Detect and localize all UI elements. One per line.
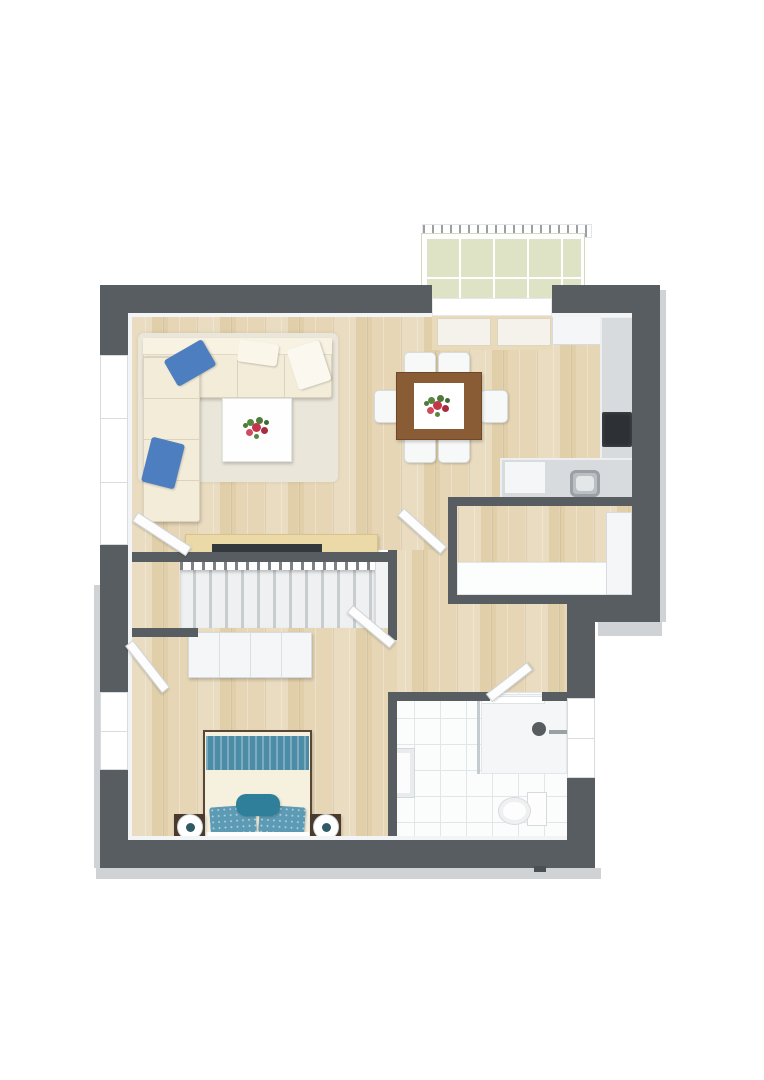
wall-pantry-top [448,497,632,506]
bed-foot-runner [206,736,309,770]
slab-edge-bottom [96,868,601,879]
tv-screen [212,544,322,552]
bathroom-window [567,698,595,778]
wall-trim-top [128,313,632,317]
balcony-door-panel-left [437,318,491,346]
outer-wall-bottom [100,840,595,868]
hall-floor-upper [388,550,457,604]
slab-edge-left [94,585,100,868]
bed-cushion-center [236,794,280,816]
hall-floor-lower [388,604,567,701]
staircase [180,570,375,628]
stair-top-landing [375,562,389,628]
bedroom-window [100,692,128,770]
outer-wall-top-left [100,285,432,313]
shower-arm [549,730,567,734]
wall-pantry-bottom [448,595,600,604]
wall-living-stairs [128,552,395,562]
stair-railing [180,562,388,570]
entry-door-handle [534,866,546,872]
cooktop [602,412,632,447]
wardrobe [188,632,312,678]
dining-table-flowers [433,401,442,410]
wall-trim-left [128,313,132,840]
slab-edge-step [598,622,662,636]
shower-head [532,722,546,736]
toilet-bowl [498,797,531,825]
outer-wall-step [595,595,660,622]
wall-trim-bottom [128,836,567,840]
wall-bathroom-top-right [542,692,567,701]
dining-chair [480,390,508,423]
pantry-tall-cabinet [606,512,632,595]
wall-bathroom-top-left [388,692,490,701]
wall-stairs-bedroom [128,628,198,637]
slab-edge-right [660,290,666,622]
wall-pantry-left [448,497,457,604]
shower-tray [481,694,567,774]
pantry-worktop [457,562,608,595]
stair-landing-floor [128,550,180,637]
floor-plan-canvas [0,0,764,1080]
balcony-door-panel-right [497,318,551,346]
wall-hall-vertical-upper [388,550,397,640]
balcony-door-threshold [432,298,552,316]
kitchen-appliance [504,461,546,494]
living-room-window [100,355,128,545]
kitchen-sink-basin [576,476,594,491]
shower-glass-screen [477,694,480,774]
outer-wall-top-right [552,285,660,313]
coffee-table-flowers [252,423,261,432]
outer-wall-right-upper [632,313,660,622]
wall-hall-vertical-lower [388,692,397,840]
